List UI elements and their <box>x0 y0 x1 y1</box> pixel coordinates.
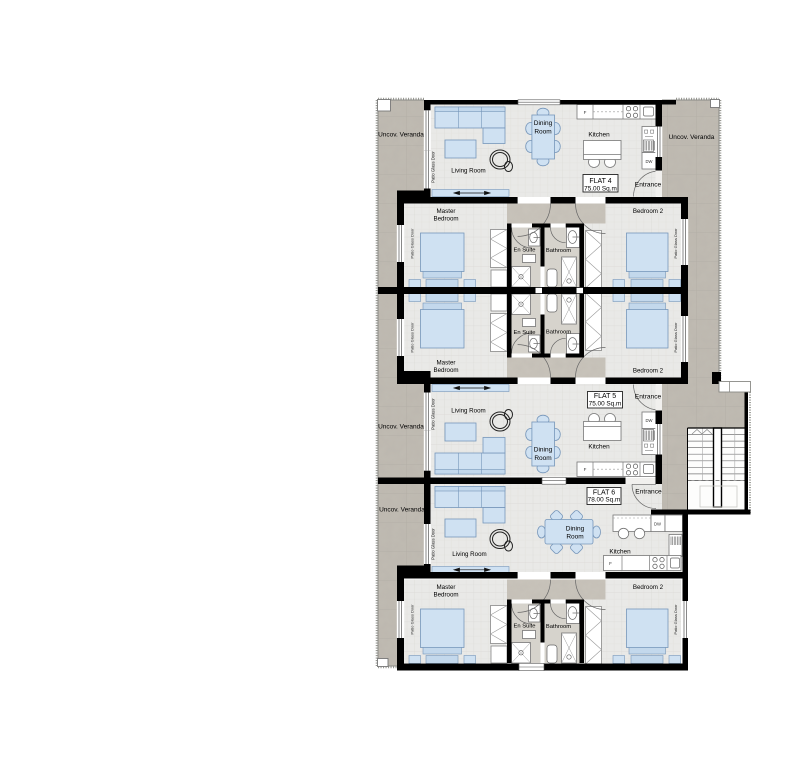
svg-text:En Suite: En Suite <box>514 248 536 254</box>
svg-text:Uncov. Veranda: Uncov. Veranda <box>379 507 425 514</box>
svg-text:75.00 Sq.m: 75.00 Sq.m <box>584 185 617 192</box>
svg-text:Entrance: Entrance <box>635 394 662 401</box>
svg-text:F: F <box>609 561 612 566</box>
svg-text:Master: Master <box>437 584 456 591</box>
svg-text:75.00 Sq.m: 75.00 Sq.m <box>589 400 622 407</box>
svg-text:Bedroom: Bedroom <box>433 592 458 599</box>
svg-text:Uncov. Veranda: Uncov. Veranda <box>378 131 424 138</box>
svg-text:78.00 Sq.m: 78.00 Sq.m <box>588 497 621 504</box>
svg-text:Patio Glass Door: Patio Glass Door <box>410 604 415 635</box>
svg-text:Uncov. Veranda: Uncov. Veranda <box>669 134 715 141</box>
svg-text:Bedroom 2: Bedroom 2 <box>633 208 664 215</box>
svg-text:FLAT 6: FLAT 6 <box>593 490 615 497</box>
svg-text:Bedroom 2: Bedroom 2 <box>633 368 664 375</box>
svg-text:Dining: Dining <box>566 526 585 533</box>
svg-text:Living Room: Living Room <box>452 551 486 558</box>
svg-text:Room: Room <box>534 455 551 462</box>
svg-text:DW: DW <box>654 522 661 527</box>
svg-text:Kitchen: Kitchen <box>588 444 610 451</box>
svg-text:Patio Glass Door: Patio Glass Door <box>410 322 415 353</box>
svg-text:Entrance: Entrance <box>635 489 662 496</box>
svg-text:Patio Glass Door: Patio Glass Door <box>430 398 435 430</box>
svg-text:Room: Room <box>566 534 583 541</box>
svg-text:F: F <box>584 467 587 472</box>
svg-text:Entrance: Entrance <box>635 182 662 189</box>
svg-text:En Suite: En Suite <box>514 624 536 630</box>
svg-text:En Suite: En Suite <box>514 330 536 336</box>
svg-text:DW: DW <box>646 418 653 423</box>
svg-text:Room: Room <box>534 129 551 136</box>
svg-text:Dining: Dining <box>534 447 553 454</box>
svg-text:Master: Master <box>437 360 456 367</box>
svg-text:Living Room: Living Room <box>451 408 485 415</box>
svg-text:Bedroom: Bedroom <box>433 367 458 374</box>
svg-text:Bathroom: Bathroom <box>546 248 571 254</box>
svg-text:FLAT 5: FLAT 5 <box>594 393 616 400</box>
svg-text:Patio Glass Door: Patio Glass Door <box>430 151 435 183</box>
svg-text:Patio Glass Door: Patio Glass Door <box>673 604 678 635</box>
svg-text:Dining: Dining <box>534 120 553 127</box>
svg-text:F: F <box>584 110 587 115</box>
svg-text:FLAT 4: FLAT 4 <box>589 178 611 185</box>
svg-text:Bathroom: Bathroom <box>546 624 571 630</box>
svg-text:Patio Glass Door: Patio Glass Door <box>673 322 678 353</box>
svg-text:Bedroom 2: Bedroom 2 <box>633 584 664 591</box>
svg-text:Kitchen: Kitchen <box>588 132 610 139</box>
svg-text:Master: Master <box>437 208 456 215</box>
svg-text:Patio Glass Door: Patio Glass Door <box>430 528 435 560</box>
svg-text:Kitchen: Kitchen <box>609 549 631 556</box>
svg-text:Patio Glass Door: Patio Glass Door <box>410 228 415 259</box>
svg-text:Uncov. Veranda: Uncov. Veranda <box>378 423 424 430</box>
svg-text:Patio Glass Door: Patio Glass Door <box>673 228 678 259</box>
svg-text:Bedroom: Bedroom <box>433 216 458 223</box>
svg-text:Bathroom: Bathroom <box>546 329 571 335</box>
svg-text:Living Room: Living Room <box>451 168 485 175</box>
svg-text:DW: DW <box>646 159 653 164</box>
